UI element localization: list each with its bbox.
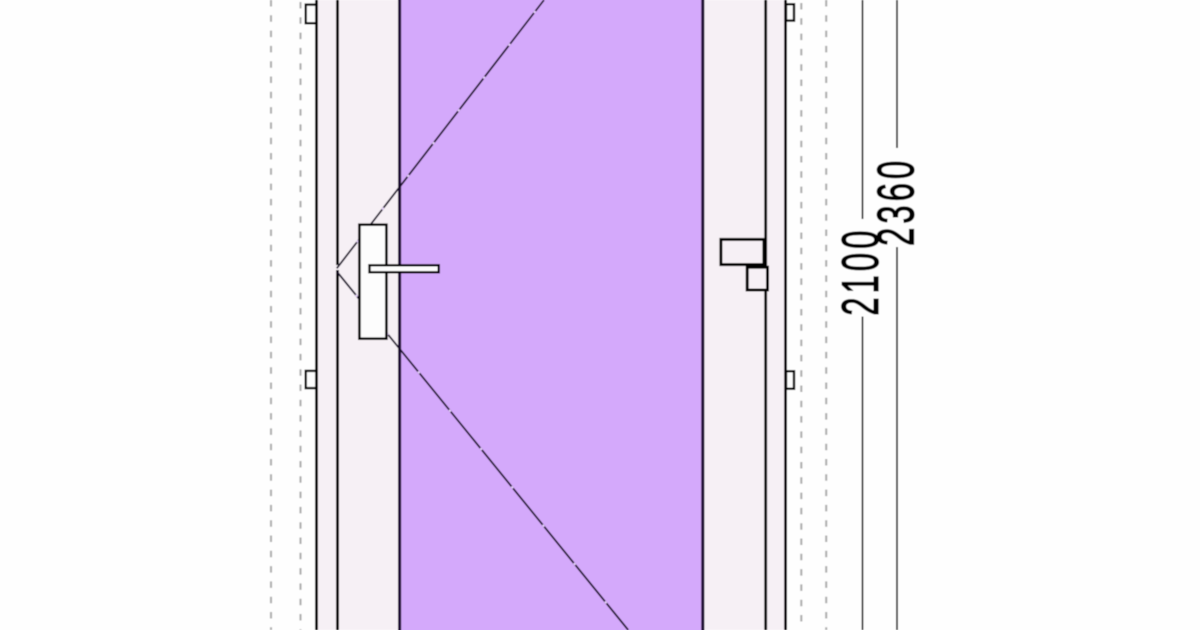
svg-text:2360: 2360 [867,157,926,246]
